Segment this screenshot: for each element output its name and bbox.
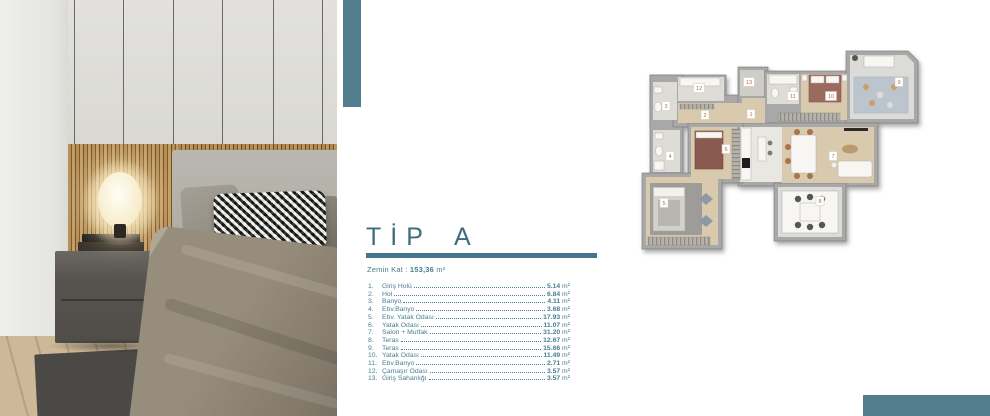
floor-subtitle: Zemin Kat : 153,36 m² — [367, 265, 597, 274]
room-area: 17.93 m² — [543, 314, 570, 322]
room-list-item: 6.Yatak Odası11.07 m² — [368, 322, 570, 330]
floor-plan-svg: 12345678910111213 — [628, 25, 928, 265]
room-list: 1.Giriş Holü5.14 m²2.Hol6.84 m²3.Banyo4.… — [368, 283, 570, 383]
room-name: Giriş Holü — [382, 283, 414, 291]
floor-label: Zemin Kat : — [367, 265, 408, 274]
room-list-item: 5.Ebv. Yatak Odası17.93 m² — [368, 314, 570, 322]
room-list-item: 8.Teras12.67 m² — [368, 337, 570, 345]
dot-leader — [401, 349, 542, 350]
wall-panel-line — [74, 0, 75, 148]
room-number-label: 7 — [831, 154, 834, 160]
title-rule — [366, 253, 597, 258]
room-number-label: 13 — [746, 80, 752, 86]
room-name: Giriş Sahanlığı — [382, 375, 429, 383]
dot-leader — [429, 379, 545, 380]
dot-leader — [416, 364, 545, 365]
wall-panel-line — [173, 0, 174, 148]
room-number: 11. — [368, 360, 382, 368]
dot-leader — [430, 372, 545, 373]
room-number: 8. — [368, 337, 382, 345]
room-number: 6. — [368, 322, 382, 330]
room-number: 1. — [368, 283, 382, 291]
floor-area-value: 153,36 — [410, 265, 434, 274]
room-list-item: 10.Yatak Odası11.49 m² — [368, 352, 570, 360]
dot-leader — [416, 310, 545, 311]
wall-panel-line — [123, 0, 124, 148]
room-area: 6.84 m² — [547, 291, 570, 299]
room-list-item: 2.Hol6.84 m² — [368, 291, 570, 299]
room-number-label: 5 — [662, 201, 665, 207]
room-name: Teras — [382, 345, 401, 353]
dot-leader — [394, 295, 545, 296]
title-block: TİP A Zemin Kat : 153,36 m² — [366, 224, 597, 274]
room-number-label: 2 — [703, 113, 706, 119]
room-number: 7. — [368, 329, 382, 337]
bedroom-photo — [0, 0, 337, 416]
page-title: TİP A — [366, 224, 597, 250]
room-area: 12.67 m² — [543, 337, 570, 345]
room-list-item: 13.Giriş Sahanlığı3.57 m² — [368, 375, 570, 383]
dot-leader — [421, 326, 542, 327]
room-number-label: 11 — [790, 94, 796, 100]
room-number-label: 10 — [828, 94, 834, 100]
room-number: 5. — [368, 314, 382, 322]
room-number-label: 3 — [664, 104, 667, 110]
room-list-item: 4.Ebv.Banyo3.68 m² — [368, 306, 570, 314]
room-number: 12. — [368, 368, 382, 376]
room-number: 4. — [368, 306, 382, 314]
wall-panel-line — [273, 0, 274, 148]
room-name: Ebv. Yatak Odası — [382, 314, 436, 322]
dot-leader — [414, 287, 545, 288]
dot-leader — [436, 318, 541, 319]
room-area: 4.11 m² — [547, 298, 570, 306]
room-area: 2.71 m² — [547, 360, 570, 368]
room-name: Yatak Odası — [382, 322, 421, 330]
room-name: Ebv.Banyo — [382, 306, 416, 314]
room-number: 2. — [368, 291, 382, 299]
accent-bar-top — [343, 0, 361, 107]
lamp-base — [114, 224, 126, 238]
room-area: 3.57 m² — [547, 368, 570, 376]
room-area: 5.14 m² — [547, 283, 570, 291]
room-name: Banyo — [382, 298, 403, 306]
room-list-item: 7.Salon + Mutfak31.20 m² — [368, 329, 570, 337]
room-name: Teras — [382, 337, 401, 345]
room-number-label: 8 — [818, 199, 821, 205]
wall-panel-line — [222, 0, 223, 148]
dot-leader — [401, 341, 542, 342]
room-number: 3. — [368, 298, 382, 306]
room-list-item: 9.Teras15.66 m² — [368, 345, 570, 353]
room-name: Hol — [382, 291, 394, 299]
room-number-label: 9 — [897, 80, 900, 86]
room-list-item: 12.Çamaşır Odası3.57 m² — [368, 368, 570, 376]
room-area: 11.49 m² — [544, 352, 570, 360]
room-number: 9. — [368, 345, 382, 353]
room-area: 11.07 m² — [544, 322, 570, 330]
room-number-label: 1 — [749, 112, 752, 118]
floor-area-unit: m² — [436, 265, 445, 274]
room-list-item: 3.Banyo4.11 m² — [368, 298, 570, 306]
dot-leader — [430, 333, 542, 334]
room-number-label: 4 — [668, 154, 671, 160]
table-lamp — [98, 172, 142, 228]
dot-leader — [421, 356, 542, 357]
dot-leader — [403, 302, 545, 303]
panel-wall — [68, 0, 337, 148]
accent-bar-bottom — [863, 395, 990, 416]
room-area: 31.20 m² — [543, 329, 570, 337]
room-area: 3.68 m² — [547, 306, 570, 314]
room-number: 10. — [368, 352, 382, 360]
floor-plan: 12345678910111213 — [628, 25, 928, 265]
room-area: 15.66 m² — [543, 345, 570, 353]
room-list-item: 1.Giriş Holü5.14 m² — [368, 283, 570, 291]
wall-panel-line — [322, 0, 323, 148]
duvet-fold — [180, 244, 337, 306]
room-number-label: 12 — [696, 86, 702, 92]
room-name: Yatak Odası — [382, 352, 421, 360]
room-number: 13. — [368, 375, 382, 383]
room-name: Çamaşır Odası — [382, 368, 430, 376]
room-number-label: 6 — [724, 147, 727, 153]
room-name: Salon + Mutfak — [382, 329, 430, 337]
bed-duvet — [129, 225, 337, 416]
duvet-fold — [163, 353, 337, 416]
room-area: 3.57 m² — [547, 375, 570, 383]
room-name: Ebv.Banyo — [382, 360, 416, 368]
room-list-item: 11.Ebv.Banyo2.71 m² — [368, 360, 570, 368]
